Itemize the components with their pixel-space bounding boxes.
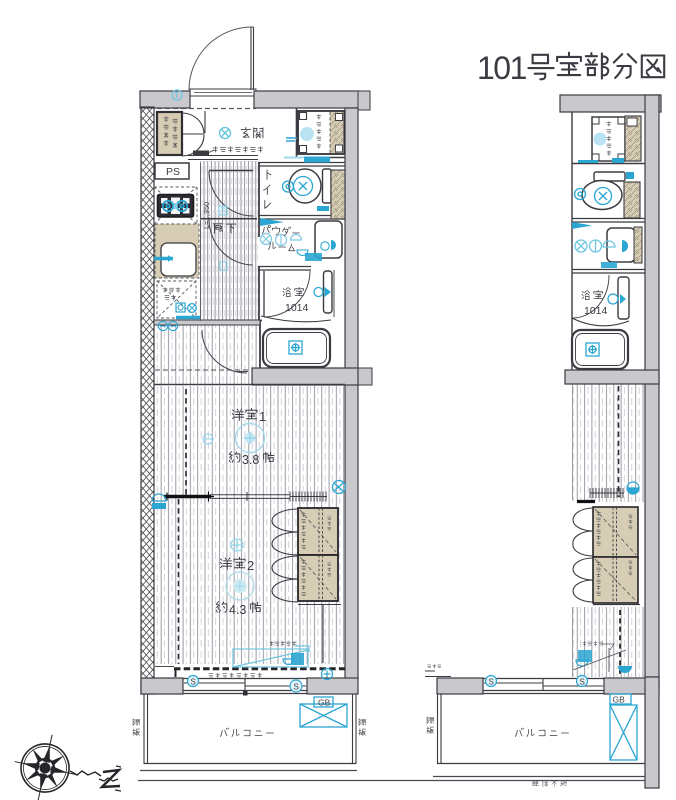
svg-text:GB: GB <box>318 698 331 708</box>
svg-text:1014: 1014 <box>584 305 608 317</box>
svg-text:3.8: 3.8 <box>242 453 259 467</box>
svg-text:1: 1 <box>259 409 266 424</box>
svg-text:101: 101 <box>477 50 527 86</box>
svg-text:L=1,350: L=1,350 <box>202 202 211 229</box>
svg-text:2: 2 <box>247 558 254 573</box>
svg-text:PS: PS <box>166 166 180 178</box>
svg-text:S: S <box>294 683 299 692</box>
svg-text:4.3: 4.3 <box>229 603 246 617</box>
svg-text:S: S <box>489 678 494 687</box>
svg-text:S: S <box>191 678 196 687</box>
svg-text:1014: 1014 <box>285 302 309 314</box>
svg-text:S: S <box>580 678 585 687</box>
svg-text:GB: GB <box>613 695 626 705</box>
